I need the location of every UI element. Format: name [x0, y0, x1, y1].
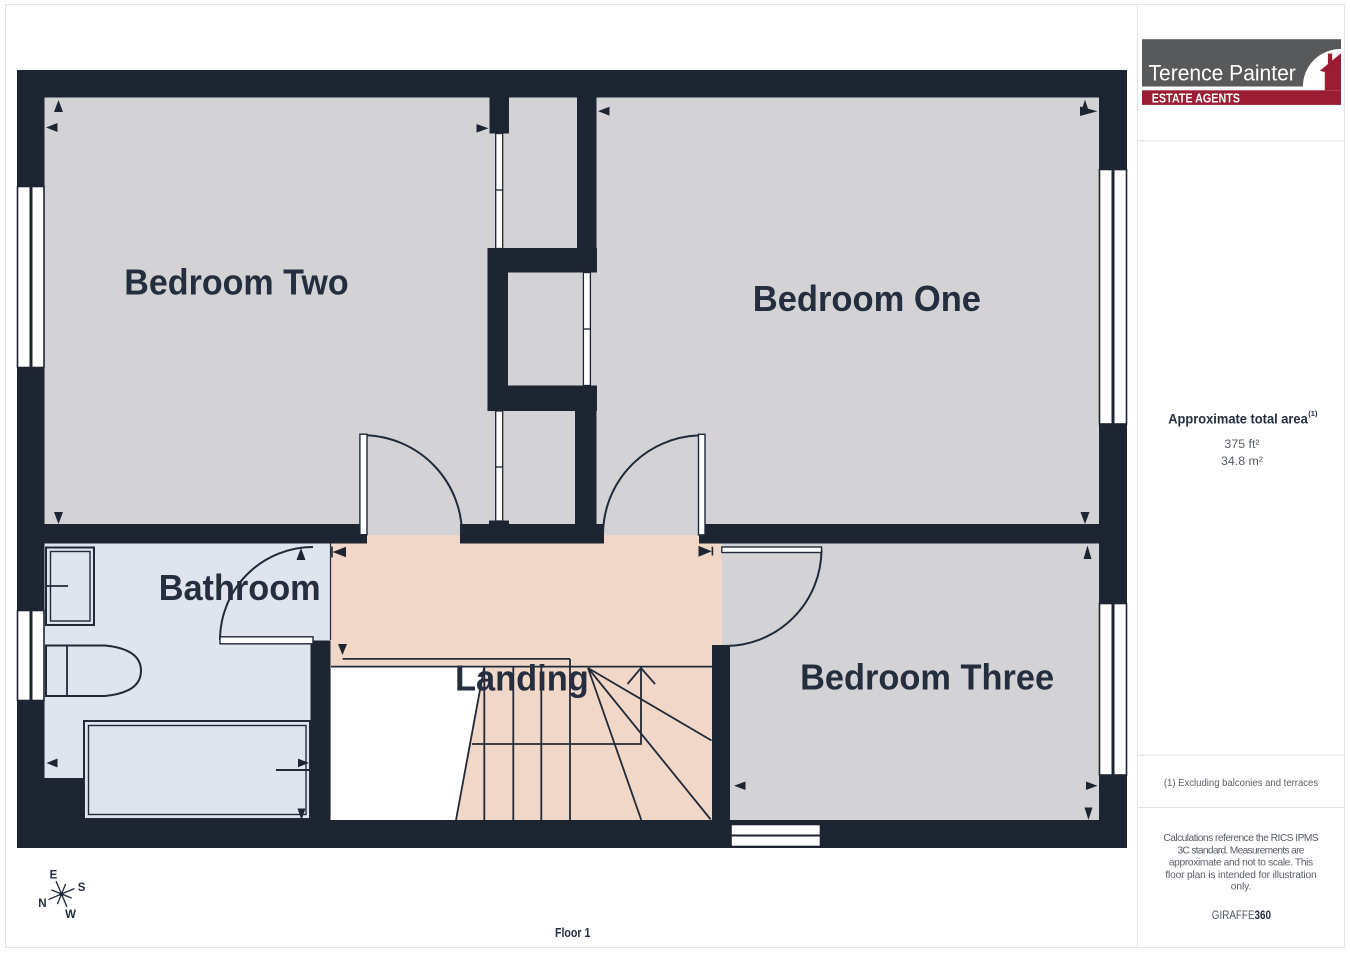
svg-text:Landing: Landing: [455, 658, 589, 699]
svg-text:Floor 1: Floor 1: [555, 926, 591, 940]
svg-text:floor plan is intended for ill: floor plan is intended for illustration: [1165, 870, 1316, 881]
svg-text:(1) Excluding balconies and te: (1) Excluding balconies and terraces: [1164, 778, 1318, 789]
svg-text:GIRAFFE360: GIRAFFE360: [1212, 910, 1271, 922]
svg-text:only.: only.: [1231, 881, 1252, 892]
svg-text:ESTATE AGENTS: ESTATE AGENTS: [1152, 91, 1240, 105]
svg-text:Bedroom One: Bedroom One: [753, 278, 981, 319]
svg-text:W: W: [65, 909, 76, 921]
svg-text:Approximate total area: Approximate total area: [1168, 412, 1308, 427]
svg-text:Bedroom Two: Bedroom Two: [124, 262, 348, 303]
svg-text:(1): (1): [1308, 409, 1318, 418]
svg-text:Terence Painter: Terence Painter: [1149, 61, 1297, 86]
svg-text:E: E: [50, 870, 58, 882]
svg-text:N: N: [38, 898, 46, 910]
svg-text:34.8 m²: 34.8 m²: [1221, 454, 1263, 468]
svg-text:Bathroom: Bathroom: [159, 567, 321, 608]
svg-text:3C standard. Measurements are: 3C standard. Measurements are: [1178, 845, 1305, 856]
svg-text:Bedroom Three: Bedroom Three: [800, 656, 1054, 697]
svg-text:375 ft²: 375 ft²: [1224, 437, 1259, 451]
svg-text:approximate and not to scale.: approximate and not to scale. This: [1169, 858, 1313, 869]
svg-text:Calculations reference the RIC: Calculations reference the RICS IPMS: [1163, 833, 1319, 844]
svg-text:S: S: [78, 882, 86, 894]
